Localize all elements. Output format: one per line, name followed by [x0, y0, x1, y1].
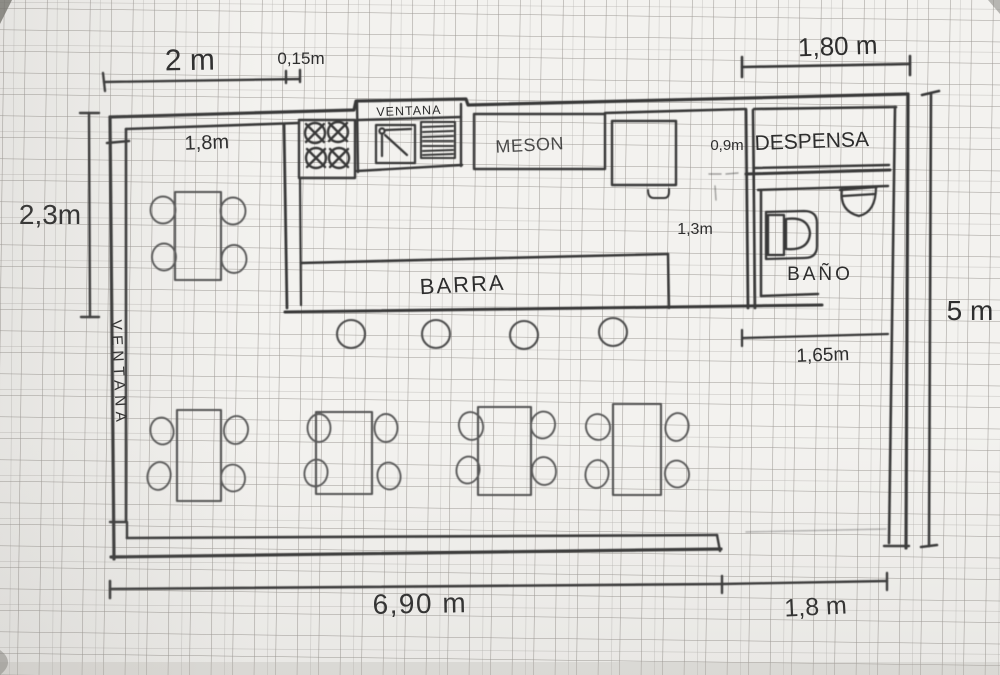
svg-text:VENTANA: VENTANA: [376, 103, 442, 119]
svg-text:1,65m: 1,65m: [796, 344, 850, 367]
svg-text:BAÑO: BAÑO: [787, 263, 853, 285]
svg-text:0,15m: 0,15m: [277, 49, 324, 68]
svg-text:MESON: MESON: [495, 133, 564, 157]
svg-text:DESPENSA: DESPENSA: [754, 128, 869, 155]
svg-text:1,80 m: 1,80 m: [797, 30, 877, 63]
svg-text:BARRA: BARRA: [419, 270, 506, 299]
svg-text:0,9m: 0,9m: [710, 137, 743, 154]
svg-text:1,3m: 1,3m: [677, 221, 713, 238]
svg-text:5 m: 5 m: [947, 295, 994, 326]
